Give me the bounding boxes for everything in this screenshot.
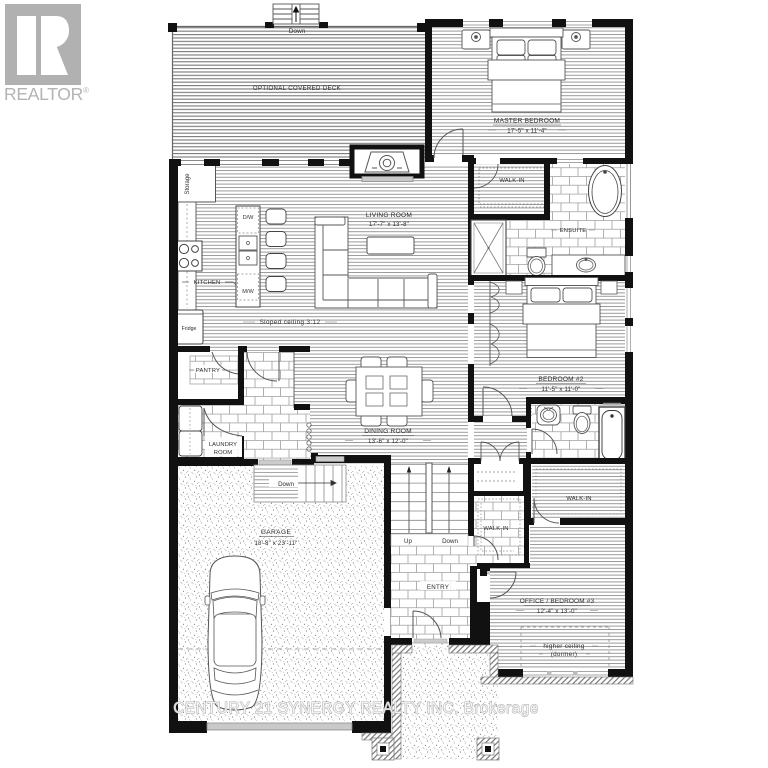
svg-text:MASTER BEDROOM: MASTER BEDROOM: [494, 118, 560, 125]
svg-text:D/W: D/W: [243, 215, 255, 221]
svg-text:LIVING ROOM: LIVING ROOM: [366, 212, 412, 219]
svg-text:WALK-IN: WALK-IN: [499, 178, 524, 184]
svg-text:17'-5" x 11'-4": 17'-5" x 11'-4": [507, 129, 546, 135]
svg-text:18'-8" x 23'-11": 18'-8" x 23'-11": [255, 541, 298, 547]
svg-text:ENSUITE: ENSUITE: [560, 228, 587, 234]
svg-text:M/W: M/W: [242, 289, 254, 295]
svg-text:CENTURY 21 SYNERGY REALTY INC.: CENTURY 21 SYNERGY REALTY INC. Brokerage: [173, 700, 538, 717]
svg-text:Up: Up: [404, 538, 412, 545]
svg-text:Sloped ceiling 3:12: Sloped ceiling 3:12: [260, 319, 321, 326]
svg-text:DINING ROOM: DINING ROOM: [364, 428, 412, 435]
svg-text:OPTIONAL COVERED DECK: OPTIONAL COVERED DECK: [253, 86, 341, 92]
svg-text:OFFICE / BEDROOM #3: OFFICE / BEDROOM #3: [520, 598, 595, 605]
svg-text:BEDROOM #2: BEDROOM #2: [538, 376, 583, 383]
svg-text:higher ceiling: higher ceiling: [543, 643, 585, 650]
svg-text:Fridge: Fridge: [182, 326, 197, 332]
svg-text:11'-5" x 11'-0": 11'-5" x 11'-0": [541, 387, 580, 393]
svg-text:Down: Down: [278, 481, 294, 488]
svg-text:(dormer): (dormer): [551, 651, 578, 658]
svg-text:13'-6" x 12'-0": 13'-6" x 12'-0": [368, 439, 408, 445]
svg-text:KITCHEN: KITCHEN: [194, 280, 221, 286]
svg-text:GARAGE: GARAGE: [261, 529, 292, 536]
svg-text:Down: Down: [289, 28, 306, 35]
svg-text:12'-4" x 13'-0": 12'-4" x 13'-0": [537, 609, 577, 615]
svg-text:REALTOR®: REALTOR®: [4, 84, 89, 104]
svg-text:LAUNDRY: LAUNDRY: [209, 442, 237, 448]
svg-text:PANTRY: PANTRY: [196, 368, 220, 374]
svg-text:Storage: Storage: [185, 173, 191, 195]
svg-text:ENTRY: ENTRY: [427, 584, 449, 591]
svg-text:WALK-IN: WALK-IN: [566, 496, 591, 502]
svg-text:17'-7" x 13'-8": 17'-7" x 13'-8": [369, 222, 409, 228]
svg-text:WALK-IN: WALK-IN: [483, 526, 508, 532]
svg-text:ROOM: ROOM: [214, 450, 233, 456]
svg-text:Down: Down: [442, 538, 458, 545]
